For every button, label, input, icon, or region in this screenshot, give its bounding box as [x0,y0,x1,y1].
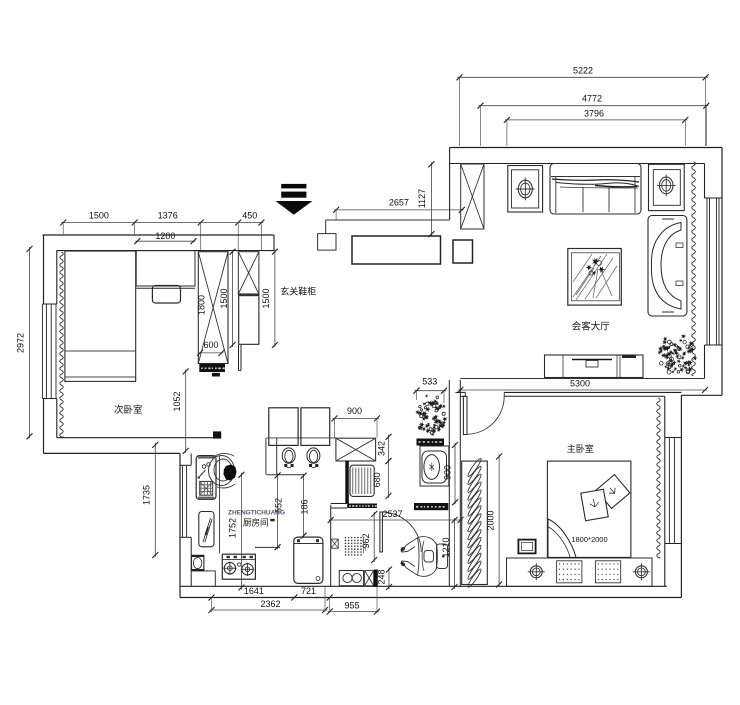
svg-text:1800: 1800 [197,295,207,315]
svg-text:2000: 2000 [485,510,495,530]
svg-text:342: 342 [376,441,386,456]
svg-text:186: 186 [299,499,309,514]
svg-text:3796: 3796 [584,109,604,119]
svg-text:次卧室: 次卧室 [114,404,143,416]
svg-text:1376: 1376 [158,211,178,221]
svg-text:2657: 2657 [389,198,409,208]
svg-text:450: 450 [242,211,257,221]
svg-text:900: 900 [443,465,453,480]
svg-text:2537: 2537 [382,509,402,519]
svg-text:900: 900 [347,406,362,416]
svg-text:533: 533 [422,377,437,387]
svg-text:1500: 1500 [89,211,109,221]
svg-text:2972: 2972 [16,333,26,353]
svg-text:1127: 1127 [417,189,427,208]
svg-text:1641: 1641 [244,586,264,596]
svg-text:680: 680 [372,472,382,487]
svg-text:1735: 1735 [142,485,152,505]
svg-text:5300: 5300 [570,379,590,389]
svg-text:1052: 1052 [172,391,182,411]
svg-text:1210: 1210 [441,537,451,557]
svg-text:1500: 1500 [261,288,271,308]
svg-text:955: 955 [344,601,359,611]
svg-text:1200: 1200 [155,231,175,241]
svg-text:2362: 2362 [260,599,280,609]
svg-text:721: 721 [301,586,316,596]
svg-text:1500: 1500 [219,288,229,308]
svg-text:厨房间: 厨房间 [243,518,269,528]
svg-text:248: 248 [377,569,387,584]
svg-text:5222: 5222 [573,66,593,76]
svg-text:ZHENGTICHUANG: ZHENGTICHUANG [228,510,285,517]
svg-text:1800*2000: 1800*2000 [571,535,607,544]
svg-text:4772: 4772 [582,94,602,104]
svg-text:962: 962 [361,533,371,548]
svg-text:玄关鞋柜: 玄关鞋柜 [280,286,316,297]
svg-text:600: 600 [203,340,218,350]
svg-text:主卧室: 主卧室 [567,443,594,454]
svg-text:会客大厅: 会客大厅 [572,321,611,333]
svg-text:1752: 1752 [228,518,238,538]
